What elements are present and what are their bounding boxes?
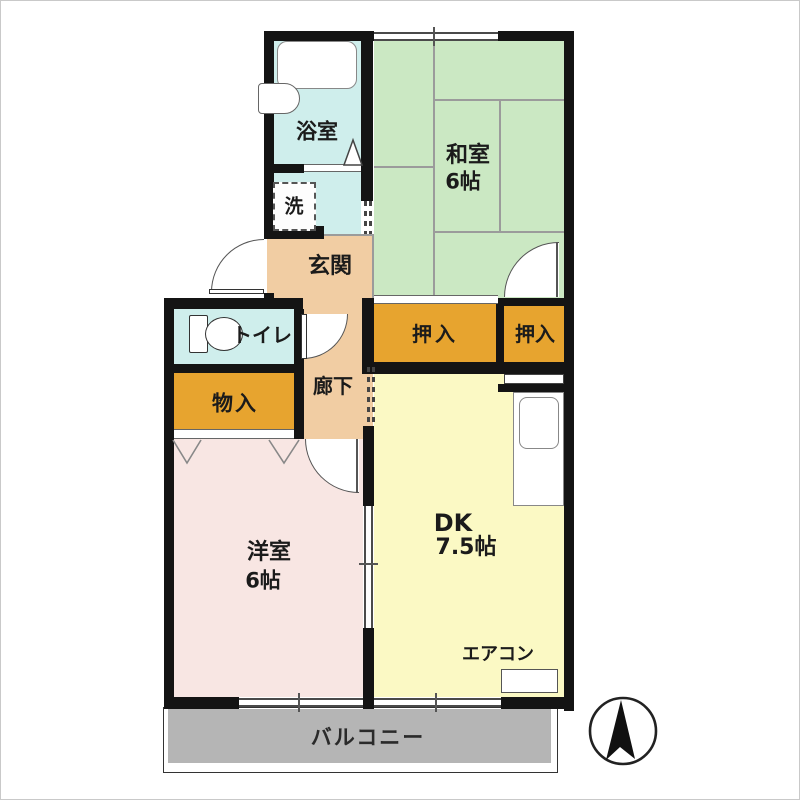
wall-segment [164,697,239,709]
door-leaf-toilet [301,314,307,359]
label-entrance: 玄関 [308,256,352,278]
wall-segment [363,628,374,697]
fusuma-sliding-door [374,295,498,304]
kitchen-sink-icon [519,397,559,449]
wall-segment [361,31,373,201]
label-dk: DK [434,511,473,535]
window-tick [435,693,437,712]
kitchen-cupboard [504,374,564,384]
wall-segment [164,298,303,309]
tatami-line [433,231,564,233]
wall-segment [264,31,374,41]
wall-segment [164,298,174,709]
label-washitsu: 和室 [446,145,490,167]
dashed-opening [369,201,372,234]
wall-segment [363,697,374,709]
wall-segment [498,298,564,306]
dashed-opening [364,201,367,234]
label-youshitsu-size: 6帖 [245,571,281,592]
label-hallway: 廊下 [313,376,353,396]
compass-north-arrow-icon [590,698,656,764]
label-balcony: バルコニー [311,728,426,749]
wall-segment [501,697,574,709]
window-symbol [374,32,498,41]
window-tick [298,693,300,712]
wall-segment [164,364,303,373]
label-storage: 物入 [212,394,258,415]
wall-segment [362,362,574,374]
wall-segment [498,31,574,41]
label-closet-right: 押入 [515,324,555,344]
bath-sink-icon [258,83,300,114]
window-tick [359,563,378,565]
window-symbol [374,698,501,707]
door-leaf-entrance [209,289,264,294]
sliding-door-track [304,164,361,172]
tatami-line [374,166,433,168]
label-closet-left: 押入 [412,324,458,344]
label-laundry: 洗 [284,198,303,217]
aircon-unit [501,669,558,693]
wall-segment [362,298,374,366]
door-leaf-youshitsu [356,439,358,493]
bathtub-icon [277,41,357,89]
floor-plan: 浴室 洗 玄関 トイレ 物入 廊下 押入 押入 和室 6帖 洋室 6帖 DK 7… [0,0,800,800]
label-youshitsu: 洋室 [247,542,291,564]
wall-segment [496,298,504,364]
label-aircon: エアコン [462,646,534,664]
label-dk-size: 7.5帖 [436,537,497,559]
wall-segment [498,384,568,392]
room-boundary-line [324,234,373,236]
room-boundary-line [372,234,374,298]
door-leaf-washitsu [556,242,558,297]
wall-segment [264,164,304,173]
label-toilet: トイレ [232,325,292,345]
sliding-door-symbol [364,506,373,628]
folding-door-track [174,429,294,439]
label-washitsu-size: 6帖 [445,172,481,193]
tatami-line [433,43,435,297]
dashed-opening [372,367,375,425]
tatami-line [499,99,501,231]
door-swing-arc-entrance [211,239,264,292]
label-bathroom: 浴室 [296,122,338,143]
wall-segment [363,426,374,506]
dashed-opening [367,367,370,425]
window-symbol [239,698,363,707]
window-tick [433,27,435,46]
